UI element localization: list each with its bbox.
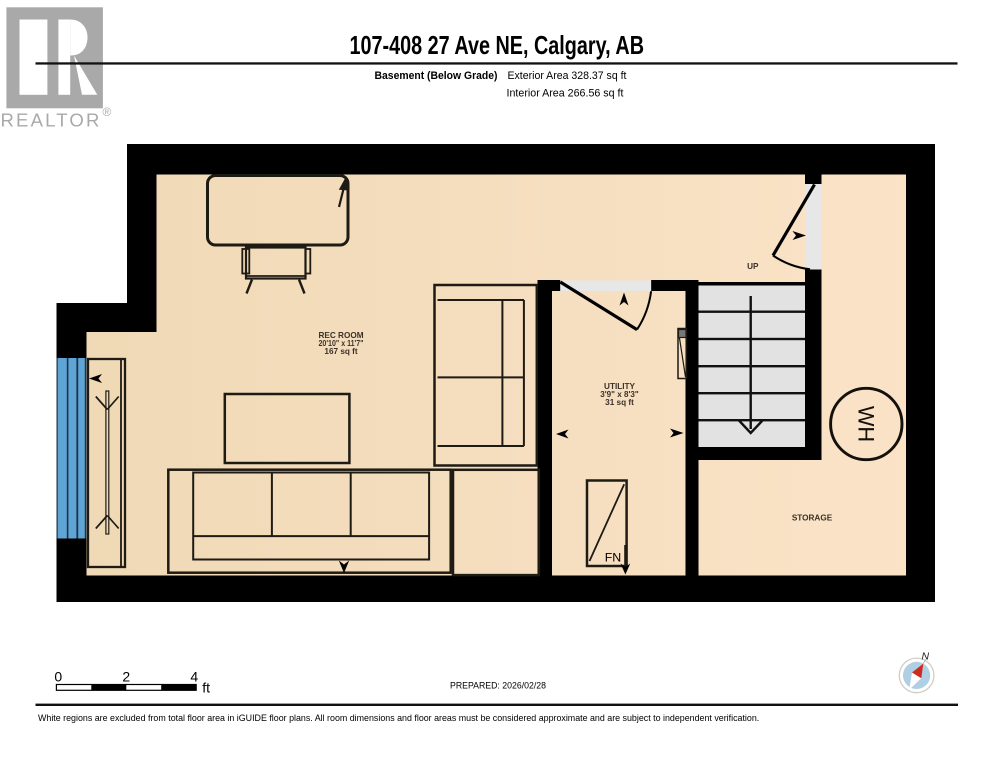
svg-text:N: N bbox=[922, 651, 930, 663]
svg-text:Basement (Below Grade): Basement (Below Grade) bbox=[375, 70, 498, 82]
svg-text:White regions are excluded fro: White regions are excluded from total fl… bbox=[38, 713, 759, 723]
svg-text:UP: UP bbox=[747, 262, 759, 271]
svg-text:2: 2 bbox=[122, 669, 130, 685]
svg-text:167 sq ft: 167 sq ft bbox=[324, 347, 357, 356]
svg-text:STORAGE: STORAGE bbox=[792, 514, 833, 523]
svg-text:FN: FN bbox=[605, 551, 622, 565]
svg-text:Interior Area 266.56 sq ft: Interior Area 266.56 sq ft bbox=[507, 88, 624, 100]
svg-text:0: 0 bbox=[54, 669, 62, 685]
svg-text:31 sq ft: 31 sq ft bbox=[605, 398, 634, 407]
svg-text:4: 4 bbox=[190, 669, 198, 685]
svg-text:®: ® bbox=[103, 105, 112, 119]
svg-text:ft: ft bbox=[202, 679, 210, 695]
svg-text:REALTOR: REALTOR bbox=[1, 110, 102, 131]
svg-text:WH: WH bbox=[854, 406, 879, 442]
svg-text:107-408 27 Ave NE, Calgary, AB: 107-408 27 Ave NE, Calgary, AB bbox=[350, 30, 645, 60]
svg-text:Exterior Area 328.37 sq ft: Exterior Area 328.37 sq ft bbox=[508, 70, 627, 82]
svg-text:PREPARED: 2026/02/28: PREPARED: 2026/02/28 bbox=[450, 681, 546, 692]
